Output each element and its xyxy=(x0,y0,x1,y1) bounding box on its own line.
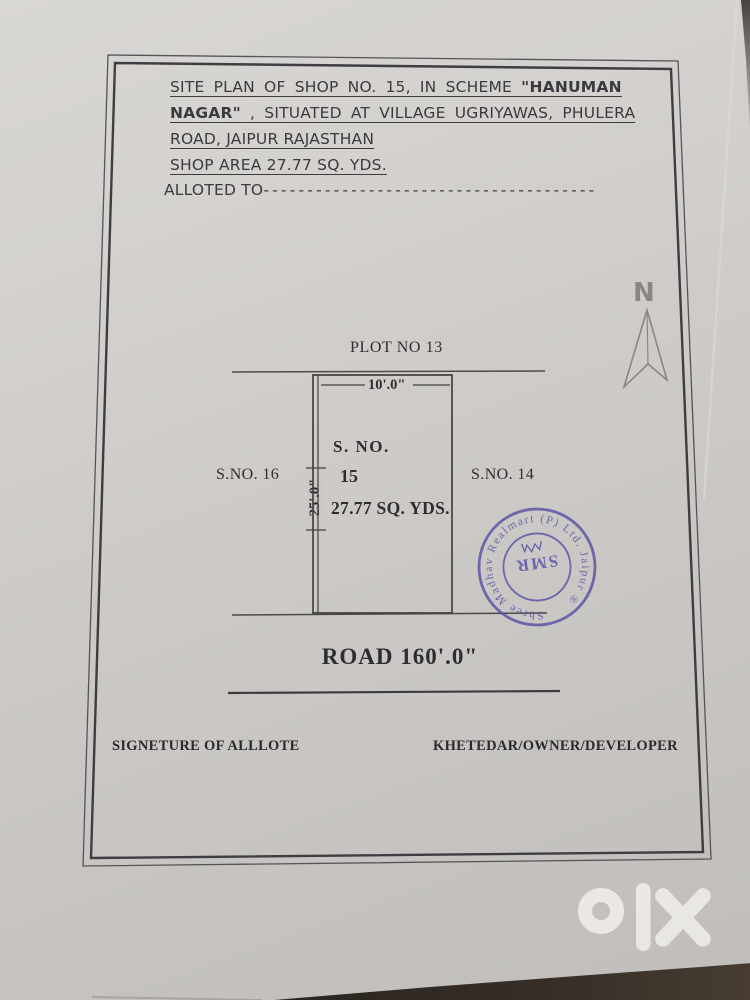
north-label: N xyxy=(633,278,655,308)
owner-developer-label: KHETEDAR/OWNER/DEVELOPER xyxy=(433,738,678,755)
adjacent-survey-right-label: S.NO. 14 xyxy=(471,466,534,484)
document-photo: SITE PLAN OF SHOP NO. 15, IN SCHEME "HAN… xyxy=(0,0,750,1000)
header-scheme-name-part1: "HANUMAN xyxy=(521,78,622,96)
header-line-4-shop-area: SHOP AREA 27.77 SQ. YDS. xyxy=(170,156,387,174)
road-label: ROAD 160'.0" xyxy=(300,644,500,670)
adjacent-survey-left-label: S.NO. 16 xyxy=(216,466,279,484)
plot-area-label: 27.77 SQ. YDS. xyxy=(331,498,450,519)
plot-depth-dimension: 25'.0" xyxy=(307,477,324,518)
signature-allottee-label: SIGNETURE OF ALLLOTE xyxy=(112,738,300,755)
plot-survey-no-label: S. NO. xyxy=(333,437,390,457)
header-line-2-text: , SITUATED AT VILLAGE UGRIYAWAS, PHULERA xyxy=(241,104,635,122)
adjacent-plot-top-label: PLOT NO 13 xyxy=(350,339,443,357)
header-line-1: SITE PLAN OF SHOP NO. 15, IN SCHEME "HAN… xyxy=(170,78,622,96)
plot-width-dimension: 10'.0" xyxy=(368,377,405,394)
plot-number: 15 xyxy=(340,466,358,487)
header-line-2: NAGAR" , SITUATED AT VILLAGE UGRIYAWAS, … xyxy=(170,104,635,122)
allotted-to-line: ALLOTED TO------------------------------… xyxy=(164,181,597,199)
header-line-1-text: SITE PLAN OF SHOP NO. 15, IN SCHEME xyxy=(170,78,521,96)
header-line-3: ROAD, JAIPUR RAJASTHAN xyxy=(170,130,374,148)
allotted-to-blank-dashes: -------------------------------------- xyxy=(263,181,597,199)
header-scheme-name-part2: NAGAR" xyxy=(170,104,241,122)
allotted-to-label: ALLOTED TO xyxy=(164,181,263,199)
